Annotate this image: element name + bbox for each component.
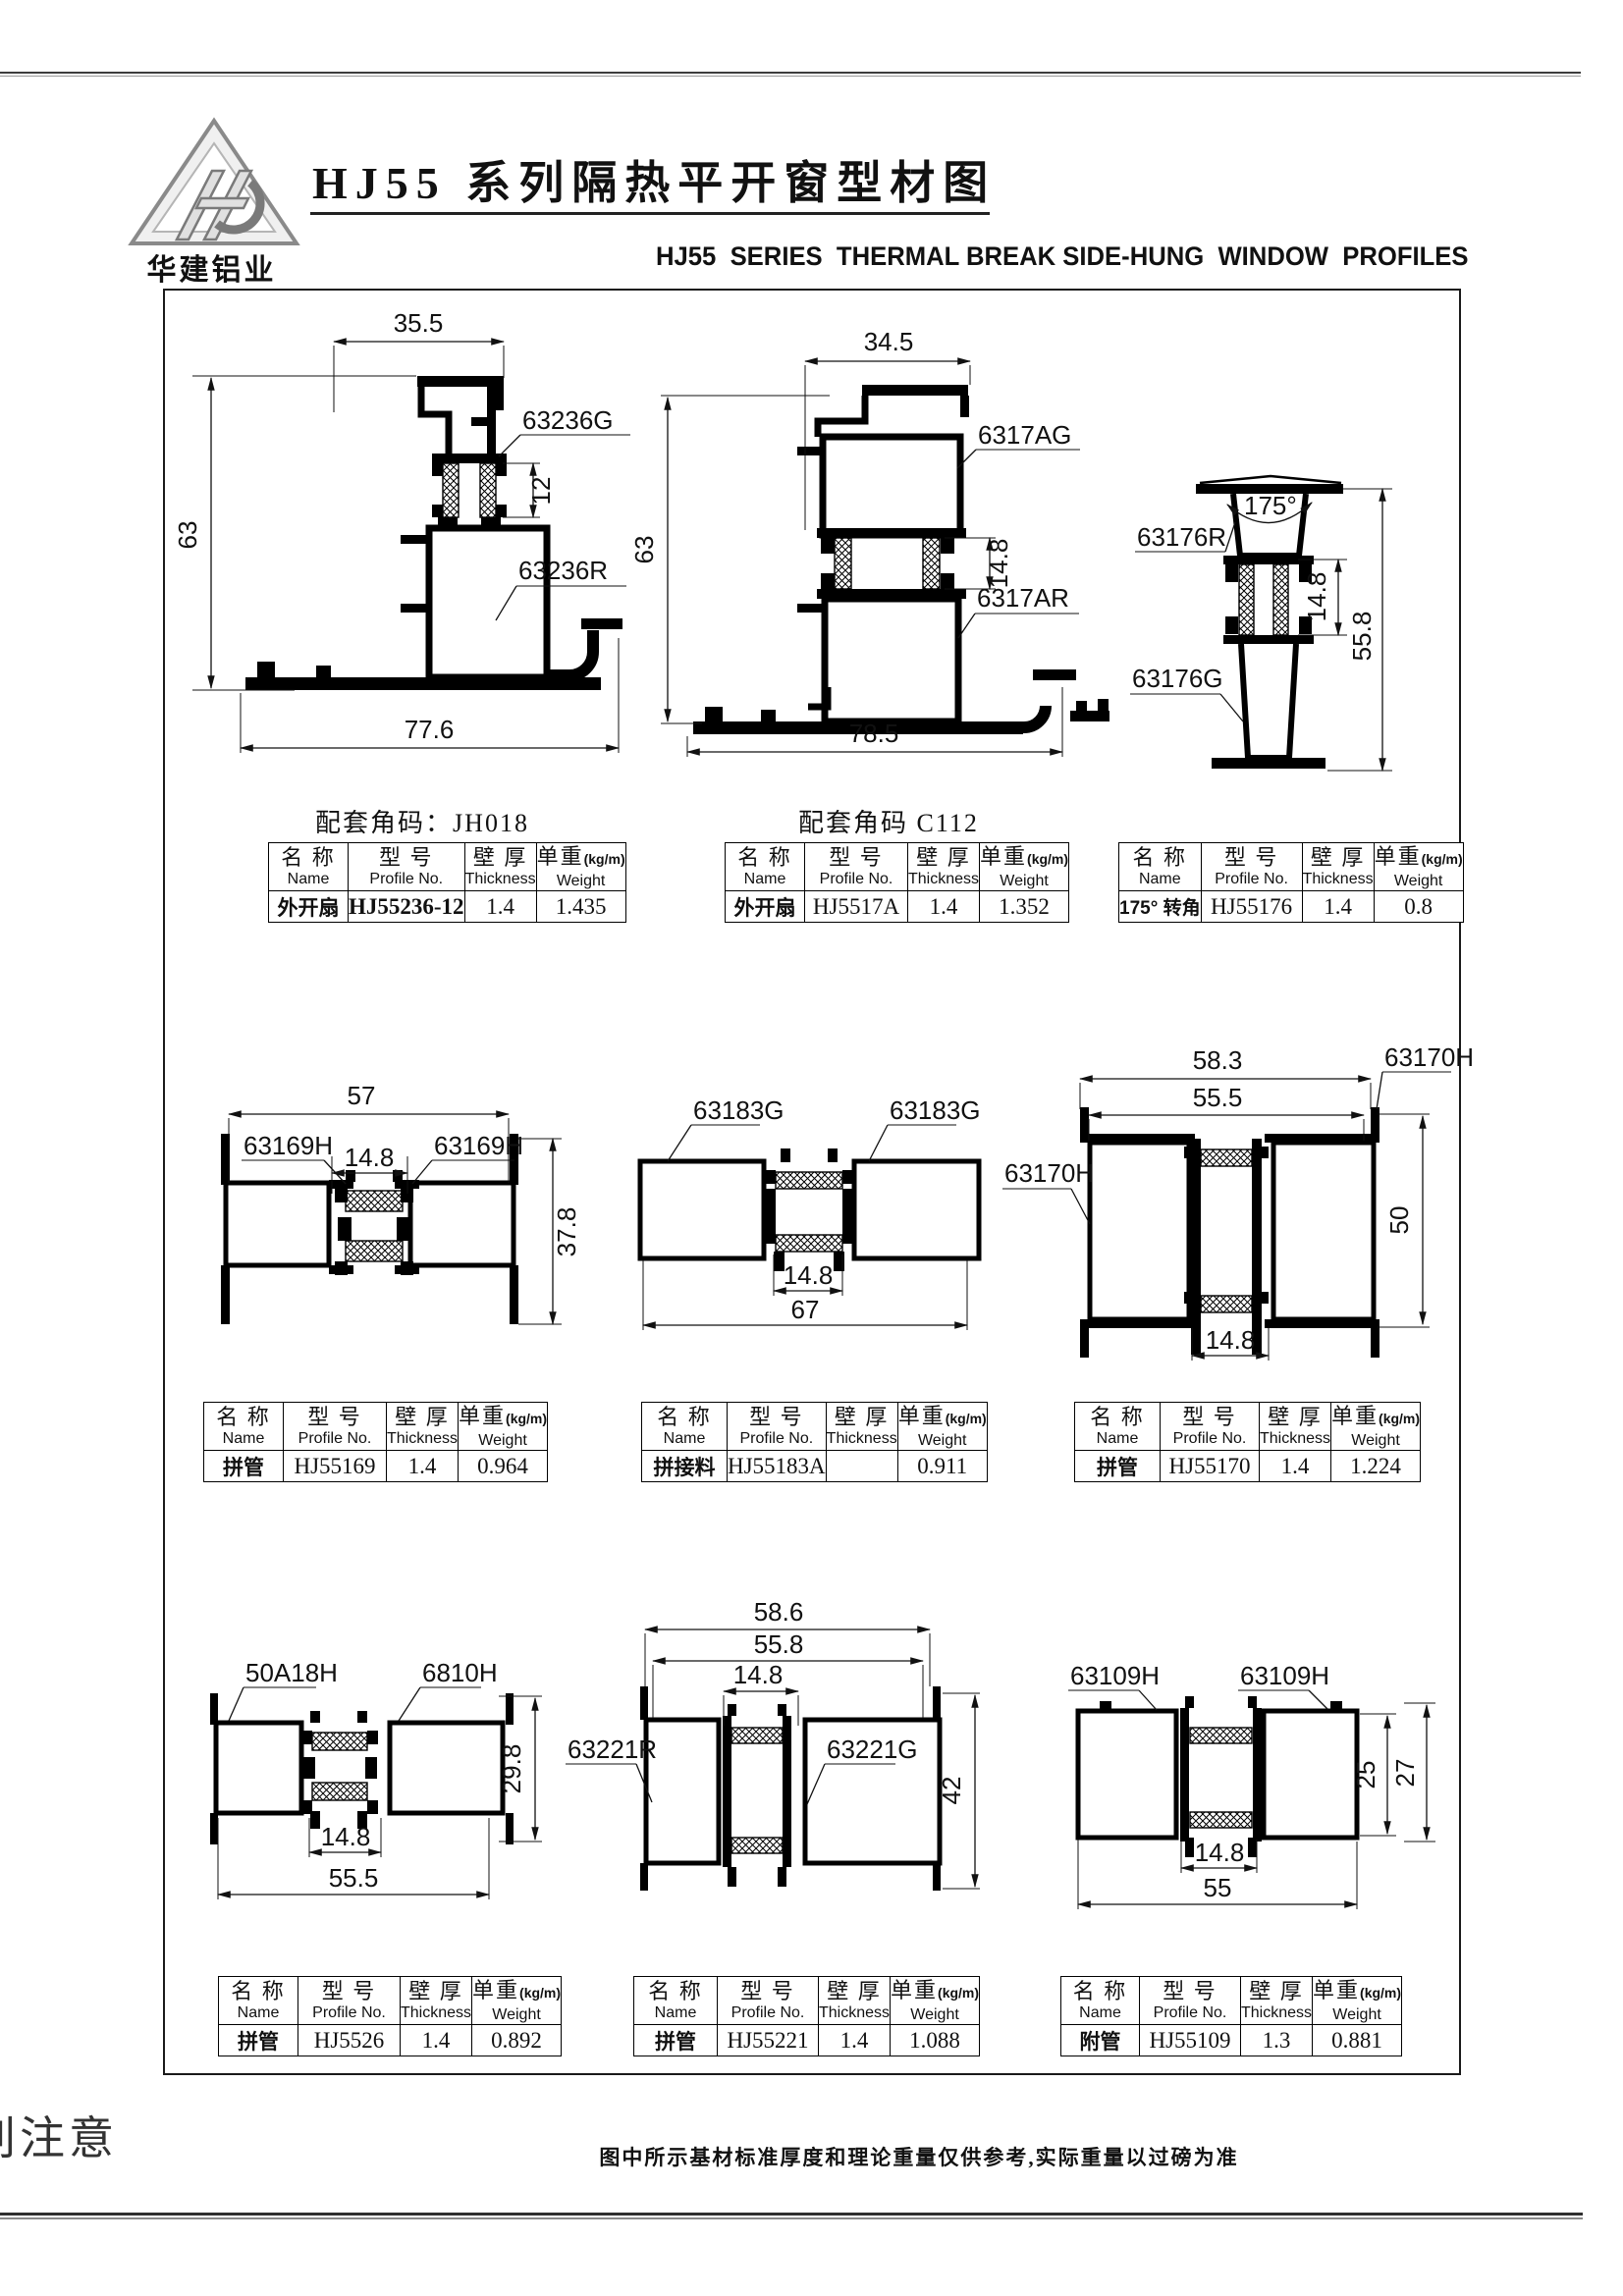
col-thickness: 壁 厚	[1260, 1405, 1330, 1429]
spec-table-hj55170: 名 称Name 型 号Profile No. 壁 厚Thickness 单重(k…	[1074, 1402, 1421, 1482]
d1-dim-bottom: 77.6	[405, 715, 455, 744]
spec-table-hj5517a: 名 称Name 型 号Profile No. 壁 厚Thickness 单重(k…	[725, 842, 1069, 923]
table-row: 附管 HJ55109 1.3 0.881	[1061, 2025, 1402, 2056]
d3-angle: 175°	[1244, 491, 1297, 520]
col-weight-en: Weight	[537, 872, 625, 890]
table-header-row: 名 称Name 型 号Profile No. 壁 厚Thickness 单重(k…	[269, 843, 626, 891]
table-row: 拼管 HJ5526 1.4 0.892	[219, 2025, 562, 2056]
col-model-en: Profile No.	[728, 1429, 826, 1448]
d8-dim-top2: 55.8	[754, 1629, 804, 1659]
d1-label-g: 63236G	[522, 405, 614, 435]
title-underline	[310, 212, 990, 215]
cell-name: 拼接料	[642, 1451, 728, 1482]
col-weight-unit: (kg/m)	[938, 1985, 979, 2001]
footer-note: 图中所示基材标准厚度和理论重量仅供参考,实际重量以过磅为准	[595, 2142, 1243, 2171]
cell-weight: 0.881	[1313, 2025, 1402, 2056]
cell-thickness: 1.4	[464, 891, 536, 923]
col-thickness: 壁 厚	[908, 845, 979, 870]
d1-label-r: 63236R	[518, 556, 608, 585]
cell-name: 拼管	[219, 2025, 298, 2056]
table-header-row: 名 称Name 型 号Profile No. 壁 厚Thickness 单重(k…	[634, 1977, 980, 2025]
col-model-en: Profile No.	[1140, 2003, 1240, 2022]
table-row: 175° 转角 HJ55176 1.4 0.8	[1119, 891, 1464, 923]
d9-dim-right2: 27	[1390, 1759, 1420, 1788]
col-model: 型 号	[1161, 1405, 1259, 1429]
d2-dim-left: 63	[629, 536, 659, 564]
d3-label-g: 63176G	[1132, 664, 1223, 693]
col-thickness: 壁 厚	[1303, 845, 1374, 870]
d5-profile-shape	[640, 1148, 979, 1271]
col-name-en: Name	[1075, 1429, 1160, 1448]
col-weight-unit: (kg/m)	[1360, 1985, 1401, 2001]
col-model: 型 号	[728, 1405, 826, 1429]
table-header-row: 名 称Name 型 号Profile No. 壁 厚Thickness 单重(k…	[726, 843, 1069, 891]
cell-name: 拼管	[1075, 1451, 1161, 1482]
col-weight: 单重	[537, 844, 584, 869]
cell-model: HJ55183A	[728, 1451, 827, 1482]
bottom-rule	[0, 2213, 1583, 2216]
cell-thickness: 1.3	[1241, 2025, 1313, 2056]
col-thickness-en: Thickness	[401, 2003, 471, 2022]
col-model-en: Profile No.	[349, 870, 464, 888]
col-model-en: Profile No.	[298, 2003, 400, 2022]
col-model-en: Profile No.	[805, 870, 907, 888]
d8-label-right: 63221G	[827, 1735, 918, 1764]
cell-weight: 0.8	[1374, 891, 1463, 923]
table-row: 拼管 HJ55169 1.4 0.964	[204, 1451, 548, 1482]
col-name: 名 称	[642, 1405, 727, 1429]
col-weight-en: Weight	[980, 872, 1068, 890]
col-thickness-en: Thickness	[908, 870, 979, 888]
col-name-en: Name	[634, 2003, 717, 2022]
col-model: 型 号	[1202, 845, 1302, 870]
col-name: 名 称	[634, 1979, 717, 2003]
col-weight-unit: (kg/m)	[584, 851, 625, 867]
d5-dim-mid: 14.8	[784, 1260, 834, 1290]
col-name-en: Name	[726, 870, 804, 888]
cell-thickness: 1.4	[401, 2025, 472, 2056]
col-model: 型 号	[349, 845, 464, 870]
col-weight-unit: (kg/m)	[1027, 851, 1068, 867]
table-header-row: 名 称Name 型 号Profile No. 壁 厚Thickness 单重(k…	[1061, 1977, 1402, 2025]
bottom-rule-shadow	[0, 2217, 1583, 2219]
d6-dim-right: 50	[1384, 1206, 1414, 1235]
col-thickness-en: Thickness	[1303, 870, 1374, 888]
cell-model: HJ55236-12	[349, 891, 465, 923]
col-model: 型 号	[284, 1405, 386, 1429]
col-weight-unit: (kg/m)	[1379, 1411, 1420, 1426]
d6-label-left: 63170H	[1004, 1158, 1094, 1188]
cell-weight: 0.964	[459, 1451, 548, 1482]
d1-dim-mid: 12	[526, 477, 556, 506]
spec-table-hj55183a: 名 称Name 型 号Profile No. 壁 厚Thickness 单重(k…	[641, 1402, 988, 1482]
col-weight-en: Weight	[1331, 1431, 1420, 1450]
col-thickness: 壁 厚	[1241, 1979, 1312, 2003]
col-thickness-en: Thickness	[387, 1429, 458, 1448]
table-header-row: 名 称Name 型 号Profile No. 壁 厚Thickness 单重(k…	[1075, 1403, 1421, 1451]
col-model: 型 号	[298, 1979, 400, 2003]
page-subtitle: HJ55 SERIES THERMAL BREAK SIDE-HUNG WIND…	[656, 241, 1469, 272]
page-title: HJ55 系列隔热平开窗型材图	[312, 147, 996, 212]
spec-table-hj5526: 名 称Name 型 号Profile No. 壁 厚Thickness 单重(k…	[218, 1976, 562, 2056]
d6-profile-shape	[1080, 1107, 1380, 1358]
d9-dim-mid: 14.8	[1195, 1838, 1245, 1867]
col-weight-en: Weight	[1313, 2005, 1401, 2024]
cell-weight: 1.435	[536, 891, 625, 923]
d1-dim-top: 35.5	[394, 308, 444, 338]
col-name-en: Name	[219, 2003, 298, 2022]
col-weight: 单重	[472, 1978, 519, 2002]
d8-label-left: 63221R	[568, 1735, 657, 1764]
cell-model: HJ55170	[1161, 1451, 1260, 1482]
col-model-en: Profile No.	[1202, 870, 1302, 888]
d2-label-g: 6317AG	[978, 420, 1071, 450]
col-thickness: 壁 厚	[465, 845, 536, 870]
spec-table-hj55221: 名 称Name 型 号Profile No. 壁 厚Thickness 单重(k…	[633, 1976, 980, 2056]
cell-thickness	[826, 1451, 897, 1482]
col-weight-en: Weight	[891, 2005, 979, 2024]
caption-jh018: 配套角码：JH018	[314, 803, 530, 839]
col-name: 名 称	[1061, 1979, 1139, 2003]
col-weight-unit: (kg/m)	[519, 1985, 561, 2001]
col-name-en: Name	[1119, 870, 1201, 888]
col-name-en: Name	[269, 870, 348, 888]
spec-table-hj55109: 名 称Name 型 号Profile No. 壁 厚Thickness 单重(k…	[1060, 1976, 1402, 2056]
cell-name: 外开扇	[726, 891, 805, 923]
d3-dim-mid: 14.8	[1302, 572, 1331, 622]
d7-label-left: 50A18H	[245, 1658, 338, 1687]
col-name: 名 称	[1119, 845, 1201, 870]
d4-label-right: 63169H	[434, 1131, 523, 1160]
company-name: 华建铝业	[116, 245, 307, 289]
d5-dim-bottom: 67	[791, 1295, 820, 1324]
col-model: 型 号	[1140, 1979, 1240, 2003]
table-header-row: 名 称Name 型 号Profile No. 壁 厚Thickness 单重(k…	[219, 1977, 562, 2025]
cell-weight: 0.892	[472, 2025, 562, 2056]
col-thickness-en: Thickness	[819, 2003, 890, 2022]
col-thickness-en: Thickness	[465, 870, 536, 888]
drawing-hj55169: 57 63169H 63169H 14.8 37.8	[163, 1080, 634, 1394]
d7-label-right: 6810H	[422, 1658, 498, 1687]
d6-dim-mid: 14.8	[1206, 1325, 1256, 1355]
col-model-en: Profile No.	[284, 1429, 386, 1448]
cell-thickness: 1.4	[387, 1451, 459, 1482]
col-model: 型 号	[805, 845, 907, 870]
side-cut-text: 别注意	[0, 2103, 118, 2167]
spec-table-hj55176: 名 称Name 型 号Profile No. 壁 厚Thickness 单重(k…	[1118, 842, 1464, 923]
col-name: 名 称	[726, 845, 804, 870]
col-model: 型 号	[718, 1979, 818, 2003]
d5-label-left: 63183G	[693, 1095, 784, 1125]
drawing-hj55236: 35.5 63 12 77.6 63236G 63236R	[163, 294, 634, 775]
drawing-hj55176: 175° 63176R 63176G 14.8 55.8	[1106, 294, 1463, 815]
d6-dim-top2: 55.5	[1193, 1083, 1243, 1112]
d2-label-r: 6317AR	[977, 583, 1069, 613]
col-thickness: 壁 厚	[387, 1405, 458, 1429]
col-weight: 单重	[1375, 844, 1422, 869]
cell-model: HJ55176	[1201, 891, 1302, 923]
drawing-hj55170: 58.3 55.5 63170H 63170H 50 14.8	[982, 1041, 1463, 1394]
col-weight: 单重	[891, 1978, 938, 2002]
drawing-hj55183a: 63183G 63183G 14.8 67	[628, 1090, 982, 1394]
col-weight: 单重	[1313, 1978, 1360, 2002]
col-thickness: 壁 厚	[819, 1979, 890, 2003]
col-weight-en: Weight	[459, 1431, 547, 1450]
d9-label-right: 63109H	[1240, 1661, 1329, 1690]
d2-dim-mid: 14.8	[984, 539, 1013, 589]
d8-dim-mid: 14.8	[733, 1660, 784, 1689]
d4-dim-right: 37.8	[552, 1207, 581, 1257]
col-name-en: Name	[204, 1429, 283, 1448]
col-weight: 单重	[980, 844, 1027, 869]
cell-weight: 1.352	[980, 891, 1069, 923]
cell-model: HJ5517A	[805, 891, 908, 923]
col-name: 名 称	[269, 845, 348, 870]
d1-dim-left: 63	[173, 521, 202, 550]
d9-label-left: 63109H	[1070, 1661, 1160, 1690]
cell-weight: 1.224	[1331, 1451, 1421, 1482]
col-name: 名 称	[204, 1405, 283, 1429]
table-row: 外开扇 HJ55236-12 1.4 1.435	[269, 891, 626, 923]
col-name-en: Name	[642, 1429, 727, 1448]
top-rule-shadow	[0, 76, 1581, 77]
cell-model: HJ55169	[284, 1451, 387, 1482]
col-weight-unit: (kg/m)	[1422, 851, 1463, 867]
drawing-hj5517a: 34.5 63 14.8 78.5 6317AG 6317AR	[634, 294, 1115, 785]
col-weight: 单重	[1331, 1404, 1379, 1428]
top-rule	[0, 72, 1581, 74]
d3-dim-right: 55.8	[1347, 612, 1377, 662]
d5-label-right: 63183G	[890, 1095, 981, 1125]
table-header-row: 名 称Name 型 号Profile No. 壁 厚Thickness 单重(k…	[642, 1403, 988, 1451]
d7-dim-bottom: 55.5	[329, 1863, 379, 1893]
cell-weight: 0.911	[897, 1451, 987, 1482]
col-model-en: Profile No.	[1161, 1429, 1259, 1448]
cell-model: HJ55221	[718, 2025, 819, 2056]
col-thickness-en: Thickness	[1260, 1429, 1330, 1448]
cell-name: 附管	[1061, 2025, 1140, 2056]
d7-dim-mid: 14.8	[321, 1822, 371, 1851]
cell-name: 外开扇	[269, 891, 349, 923]
d9-dim-bottom: 55	[1204, 1873, 1232, 1902]
table-row: 外开扇 HJ5517A 1.4 1.352	[726, 891, 1069, 923]
col-weight-unit: (kg/m)	[946, 1411, 987, 1426]
col-thickness-en: Thickness	[1241, 2003, 1312, 2022]
d8-dim-right: 42	[937, 1777, 966, 1805]
d9-dim-right1: 25	[1351, 1761, 1380, 1789]
col-name: 名 称	[1075, 1405, 1160, 1429]
col-name-en: Name	[1061, 2003, 1139, 2022]
d3-label-r: 63176R	[1137, 522, 1226, 552]
col-weight-en: Weight	[898, 1431, 987, 1450]
col-model-en: Profile No.	[718, 2003, 818, 2022]
col-thickness-en: Thickness	[827, 1429, 897, 1448]
cell-name: 拼管	[634, 2025, 718, 2056]
d4-label-left: 63169H	[243, 1131, 333, 1160]
cell-thickness: 1.4	[819, 2025, 891, 2056]
cell-model: HJ5526	[298, 2025, 401, 2056]
cell-thickness: 1.4	[908, 891, 980, 923]
spec-table-hj55236: 名 称Name 型 号Profile No. 壁 厚Thickness 单重(k…	[268, 842, 626, 923]
drawing-hj55109: 63109H 63109H 25 27 14.8 55	[1041, 1659, 1463, 1973]
drawing-hj55221: 58.6 55.8 14.8 63221R 63221G 42	[550, 1600, 1041, 1973]
cell-model: HJ55109	[1140, 2025, 1241, 2056]
spec-table-hj55169: 名 称Name 型 号Profile No. 壁 厚Thickness 单重(k…	[203, 1402, 548, 1482]
d9-profile-shape	[1078, 1696, 1357, 1857]
d8-profile-shape	[640, 1686, 941, 1891]
d8-dim-top1: 58.6	[754, 1597, 804, 1627]
cell-name: 拼管	[204, 1451, 284, 1482]
col-weight-unit: (kg/m)	[506, 1411, 547, 1426]
cell-name: 175° 转角	[1119, 891, 1202, 923]
d4-dim-top: 57	[348, 1081, 376, 1110]
d2-dim-top: 34.5	[864, 327, 914, 356]
cell-weight: 1.088	[891, 2025, 980, 2056]
col-weight: 单重	[459, 1404, 506, 1428]
d4-dim-mid: 14.8	[345, 1143, 395, 1172]
col-weight-en: Weight	[472, 2005, 561, 2024]
cell-thickness: 1.4	[1302, 891, 1374, 923]
d6-label-top: 63170H	[1384, 1042, 1474, 1072]
col-weight: 单重	[898, 1404, 946, 1428]
col-weight-en: Weight	[1375, 872, 1463, 890]
company-logo-icon	[126, 118, 302, 247]
col-thickness: 壁 厚	[827, 1405, 897, 1429]
table-header-row: 名 称Name 型 号Profile No. 壁 厚Thickness 单重(k…	[1119, 843, 1464, 891]
d2-dim-bottom: 78.5	[849, 719, 899, 748]
d7-dim-right: 29.8	[497, 1744, 526, 1794]
table-header-row: 名 称Name 型 号Profile No. 壁 厚Thickness 单重(k…	[204, 1403, 548, 1451]
col-name: 名 称	[219, 1979, 298, 2003]
drawing-sheet: 华建铝业 HJ55 系列隔热平开窗型材图 HJ55 SERIES THERMAL…	[0, 0, 1623, 2296]
table-row: 拼接料 HJ55183A 0.911	[642, 1451, 988, 1482]
table-row: 拼管 HJ55170 1.4 1.224	[1075, 1451, 1421, 1482]
table-row: 拼管 HJ55221 1.4 1.088	[634, 2025, 980, 2056]
cell-thickness: 1.4	[1260, 1451, 1331, 1482]
col-thickness: 壁 厚	[401, 1979, 471, 2003]
caption-c112: 配套角码 C112	[781, 803, 997, 839]
d6-dim-top1: 58.3	[1193, 1045, 1243, 1075]
